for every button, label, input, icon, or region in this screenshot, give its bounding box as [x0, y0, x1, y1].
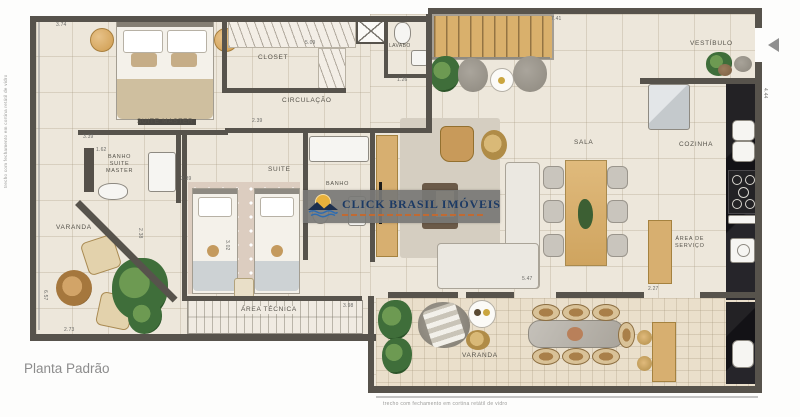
service-wood-island — [648, 220, 672, 284]
dining-chair — [543, 200, 564, 223]
staircase — [432, 14, 554, 60]
wall-banhosm-right — [176, 135, 181, 203]
outdoor-chair — [592, 304, 620, 321]
wall-varanda-seg1 — [388, 292, 458, 298]
rattan-pouf-outdoor — [466, 330, 490, 350]
chaise-lounge — [418, 302, 470, 348]
label-circulacao: CIRCULAÇÃO — [282, 97, 332, 105]
page-title: Planta Padrão — [24, 361, 110, 376]
suite-bed-2 — [254, 188, 300, 294]
caption-left-vertical: trecho com fechamento em cortina retátil… — [3, 28, 8, 188]
outdoor-chair — [562, 304, 590, 321]
entry-door-gap — [755, 28, 762, 62]
label-vestibulo: VESTÍBULO — [690, 40, 733, 48]
label-sala: SALA — [574, 139, 593, 147]
kitchen-sink-1 — [732, 120, 755, 141]
suite-master-bed — [116, 20, 214, 120]
entry-arrow-icon — [768, 38, 779, 52]
wall-wing-divider — [426, 14, 432, 132]
rattan-pouf — [481, 130, 507, 160]
wall-varanda-seg2 — [466, 292, 514, 298]
label-area-servico: ÁREA DE SERVIÇO — [675, 236, 705, 250]
floorplan-canvas: SUITE MASTER CLOSET LAVABO CIRCULAÇÃO VE… — [0, 0, 800, 417]
lavabo-toilet — [394, 22, 411, 44]
wall-top-right — [428, 8, 762, 14]
label-cozinha: COZINHA — [679, 141, 713, 149]
varanda-sink — [732, 340, 754, 368]
wall-suite-bottom — [182, 296, 362, 301]
outdoor-chair — [532, 348, 560, 365]
dining-table — [565, 160, 607, 266]
wall-bottom-left-wing — [30, 334, 376, 341]
label-banho: BANHO — [326, 181, 349, 188]
outdoor-chair — [532, 304, 560, 321]
outdoor-chair — [562, 348, 590, 365]
living-armchair-wood — [440, 126, 474, 162]
wall-vestibulo-cozinha — [640, 78, 762, 84]
dining-chair — [543, 234, 564, 257]
caption-bottom: trecho com fechamento em cortina retátil… — [383, 401, 507, 407]
fridge — [648, 84, 690, 130]
banhosm-toilet — [98, 183, 128, 200]
wall-varanda-seg4 — [700, 292, 758, 298]
towel-rail — [728, 215, 758, 224]
armchair-gray-2 — [513, 56, 547, 92]
armchair-gray-1 — [458, 58, 488, 92]
watermark-tagline-strip — [342, 214, 484, 217]
banhosm-shower — [148, 152, 176, 192]
wall-corridor-bottom — [225, 128, 432, 133]
banho-shower — [309, 136, 369, 162]
wall-right — [755, 8, 762, 393]
closet-wardrobe-side — [318, 48, 346, 90]
label-varanda-left: VARANDA — [56, 224, 92, 232]
dining-chair — [607, 234, 628, 257]
pouf-stone-brown — [718, 64, 732, 76]
outdoor-chair-end — [618, 322, 635, 348]
glass-curtain-left — [38, 22, 40, 330]
label-suite: SUITE — [268, 166, 291, 174]
dining-chair — [543, 166, 564, 189]
wall-lavabo-left — [384, 18, 388, 76]
wall-left — [30, 16, 36, 341]
sofa-l-horizontal — [437, 243, 539, 289]
watermark-brand-text: CLICK BRASIL IMÓVEIS — [342, 197, 501, 212]
label-closet: CLOSET — [258, 54, 288, 62]
wall-closet-corridor — [222, 88, 346, 93]
bar-stool-2 — [637, 356, 652, 371]
wall-lavabo-bottom — [384, 74, 432, 78]
outdoor-chair — [592, 348, 620, 365]
varanda-bar-counter — [652, 322, 676, 382]
wall-top-left — [30, 16, 432, 22]
suite-nightstand — [234, 278, 254, 298]
banhosm-vanity — [84, 148, 94, 192]
click-brasil-logo-icon — [307, 193, 339, 220]
outdoor-round-table — [468, 300, 496, 328]
label-area-tecnica: ÁREA TÉCNICA — [238, 306, 300, 314]
wall-suite-closet — [222, 22, 227, 90]
dimension-label: 4.44 — [762, 88, 768, 99]
pouf-stone-gray — [734, 56, 752, 72]
side-table-round — [490, 68, 514, 92]
dry-plant-decor — [56, 270, 92, 306]
label-varanda-bottom: VARANDA — [462, 352, 498, 360]
label-suite-master: SUITE MASTER — [137, 118, 193, 126]
bar-stool-1 — [637, 330, 652, 345]
wall-bottom-right-wing — [370, 386, 762, 393]
dining-chair — [607, 200, 628, 223]
dining-chair — [607, 166, 628, 189]
kitchen-sink-2 — [732, 141, 755, 162]
wall-suitemaster-bottom — [78, 130, 228, 135]
label-lavabo: LAVABO — [389, 43, 411, 49]
suite-bed-1 — [192, 188, 238, 294]
outdoor-dining-table — [528, 320, 624, 348]
wall-varanda-left-vert — [368, 296, 374, 393]
label-banho-suite-master: BANHO SUITE MASTER — [106, 154, 133, 175]
glass-curtain-bottom — [376, 396, 758, 398]
nightstand-left — [90, 28, 114, 52]
washing-machine — [730, 238, 755, 263]
closet-wardrobe-hatch — [228, 20, 356, 48]
wall-suite-left — [182, 135, 187, 300]
watermark-band: CLICK BRASIL IMÓVEIS — [303, 190, 500, 223]
wall-varanda-seg3 — [556, 292, 644, 298]
